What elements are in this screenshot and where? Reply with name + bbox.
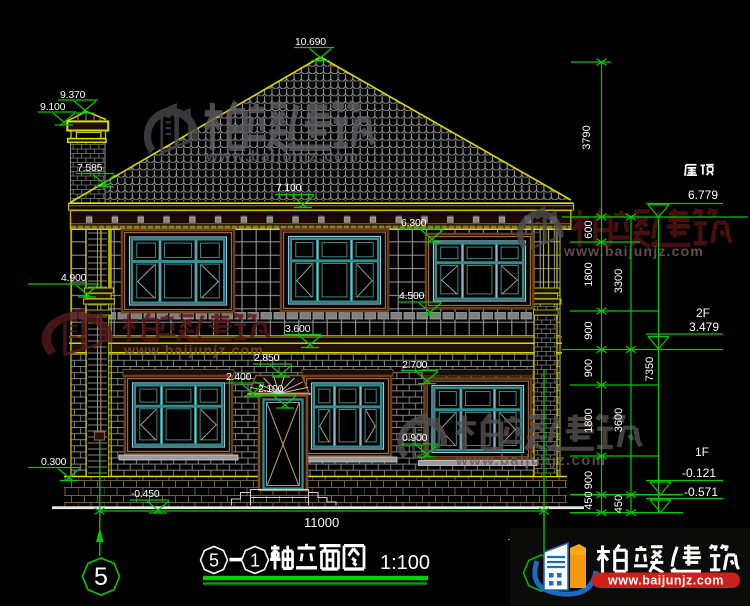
svg-text:5: 5 — [209, 551, 219, 571]
svg-text:11000: 11000 — [304, 515, 339, 530]
svg-text:-0.121: -0.121 — [682, 466, 716, 480]
svg-text:900: 900 — [583, 471, 595, 489]
svg-text:9.370: 9.370 — [60, 89, 86, 101]
svg-text:600: 600 — [583, 220, 595, 238]
svg-text:www.baijunjz.com: www.baijunjz.com — [123, 342, 264, 358]
svg-text:5: 5 — [94, 563, 108, 591]
svg-text:-0.450: -0.450 — [131, 488, 160, 500]
svg-text:7.100: 7.100 — [276, 182, 302, 194]
svg-text:2.700: 2.700 — [402, 359, 428, 371]
svg-text:www.baijunjz.com: www.baijunjz.com — [455, 452, 606, 469]
svg-text:450: 450 — [613, 495, 625, 513]
svg-text:3.600: 3.600 — [285, 323, 311, 335]
svg-text:2.100: 2.100 — [258, 383, 284, 395]
svg-text:900: 900 — [583, 321, 595, 339]
svg-text:www.baijunjz.com: www.baijunjz.com — [205, 148, 359, 165]
svg-text:7.585: 7.585 — [77, 162, 103, 174]
svg-text:3300: 3300 — [613, 269, 625, 293]
svg-text:2.850: 2.850 — [254, 352, 280, 364]
svg-text:6.779: 6.779 — [688, 188, 718, 202]
svg-text:www.baijunjz.com: www.baijunjz.com — [563, 243, 704, 259]
svg-text:3790: 3790 — [581, 125, 593, 149]
svg-text:-0.571: -0.571 — [684, 485, 718, 499]
svg-text:4.500: 4.500 — [399, 290, 425, 302]
svg-text:www.baijunjz.com: www.baijunjz.com — [607, 574, 724, 588]
svg-text:7350: 7350 — [644, 357, 656, 381]
svg-text:4.900: 4.900 — [61, 272, 87, 284]
svg-text:2.400: 2.400 — [226, 371, 252, 383]
svg-text:1: 1 — [250, 551, 260, 571]
svg-text:1:100: 1:100 — [380, 552, 430, 574]
svg-text:3.479: 3.479 — [689, 320, 719, 334]
svg-text:6.300: 6.300 — [401, 217, 427, 229]
svg-text:1F: 1F — [695, 445, 709, 459]
svg-text:1800: 1800 — [583, 262, 595, 286]
svg-text:3600: 3600 — [613, 408, 625, 432]
svg-text:0.300: 0.300 — [41, 456, 67, 468]
svg-text:0.900: 0.900 — [402, 432, 428, 444]
svg-text:2F: 2F — [696, 306, 710, 320]
svg-text:1800: 1800 — [583, 408, 595, 432]
svg-text:450: 450 — [583, 491, 595, 509]
svg-text:9.100: 9.100 — [40, 101, 66, 113]
svg-text:10.690: 10.690 — [295, 36, 326, 48]
svg-text:900: 900 — [583, 359, 595, 377]
